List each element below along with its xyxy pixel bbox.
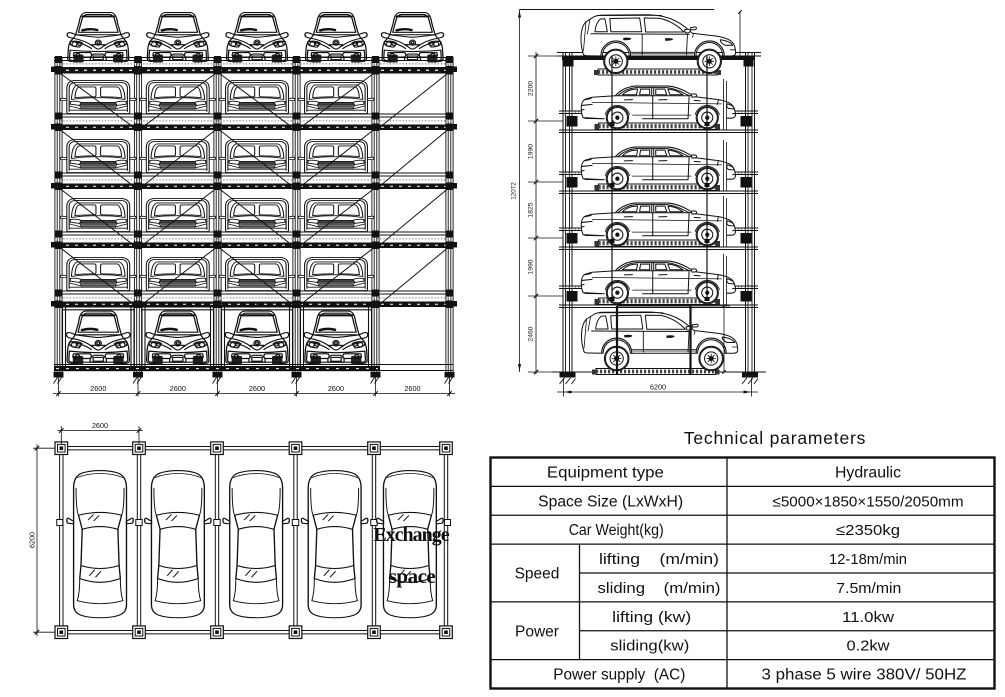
svg-text:6200: 6200 xyxy=(28,532,37,548)
svg-text:Power supply (AC): Power supply (AC) xyxy=(553,667,685,684)
svg-text:Power: Power xyxy=(515,623,559,640)
svg-text:2600: 2600 xyxy=(170,384,186,393)
svg-text:Speed: Speed xyxy=(515,566,560,583)
svg-text:space: space xyxy=(389,564,436,588)
svg-text:12072: 12072 xyxy=(511,182,518,200)
svg-text:≤2350kg: ≤2350kg xyxy=(836,522,900,539)
svg-text:sliding (m/min): sliding (m/min) xyxy=(598,580,721,597)
svg-text:3 phase 5 wire 380V/ 50HZ: 3 phase 5 wire 380V/ 50HZ xyxy=(762,667,967,684)
svg-text:1990: 1990 xyxy=(528,144,535,159)
svg-text:1990: 1990 xyxy=(528,259,535,274)
svg-text:1825: 1825 xyxy=(528,202,535,217)
svg-text:2600: 2600 xyxy=(92,421,108,430)
svg-text:2600: 2600 xyxy=(249,384,265,393)
svg-text:2460: 2460 xyxy=(528,326,535,341)
svg-text:0.2kw: 0.2kw xyxy=(847,639,891,655)
svg-text:lifting (kw): lifting (kw) xyxy=(612,609,691,626)
svg-text:sliding(kw): sliding(kw) xyxy=(610,638,689,655)
svg-text:2600: 2600 xyxy=(328,384,344,393)
svg-text:Equipment type: Equipment type xyxy=(547,464,664,481)
svg-text:7.5m/min: 7.5m/min xyxy=(836,581,901,597)
svg-text:Technical parameters: Technical parameters xyxy=(684,428,866,448)
svg-text:11.0kw: 11.0kw xyxy=(842,610,895,626)
svg-text:Hydraulic: Hydraulic xyxy=(835,464,901,481)
svg-text:Space Size (LxWxH): Space Size (LxWxH) xyxy=(538,493,683,510)
svg-text:Car Weight(kg): Car Weight(kg) xyxy=(569,522,664,539)
svg-text:≤5000×1850×1550/2050mm: ≤5000×1850×1550/2050mm xyxy=(773,493,964,510)
svg-text:6200: 6200 xyxy=(650,383,666,392)
svg-text:lifting (m/min): lifting (m/min) xyxy=(599,551,719,568)
svg-text:12-18m/min: 12-18m/min xyxy=(829,552,907,568)
svg-text:Exchange: Exchange xyxy=(373,524,449,546)
svg-text:2200: 2200 xyxy=(528,81,535,96)
svg-text:2600: 2600 xyxy=(404,384,420,393)
svg-text:2600: 2600 xyxy=(90,384,106,393)
